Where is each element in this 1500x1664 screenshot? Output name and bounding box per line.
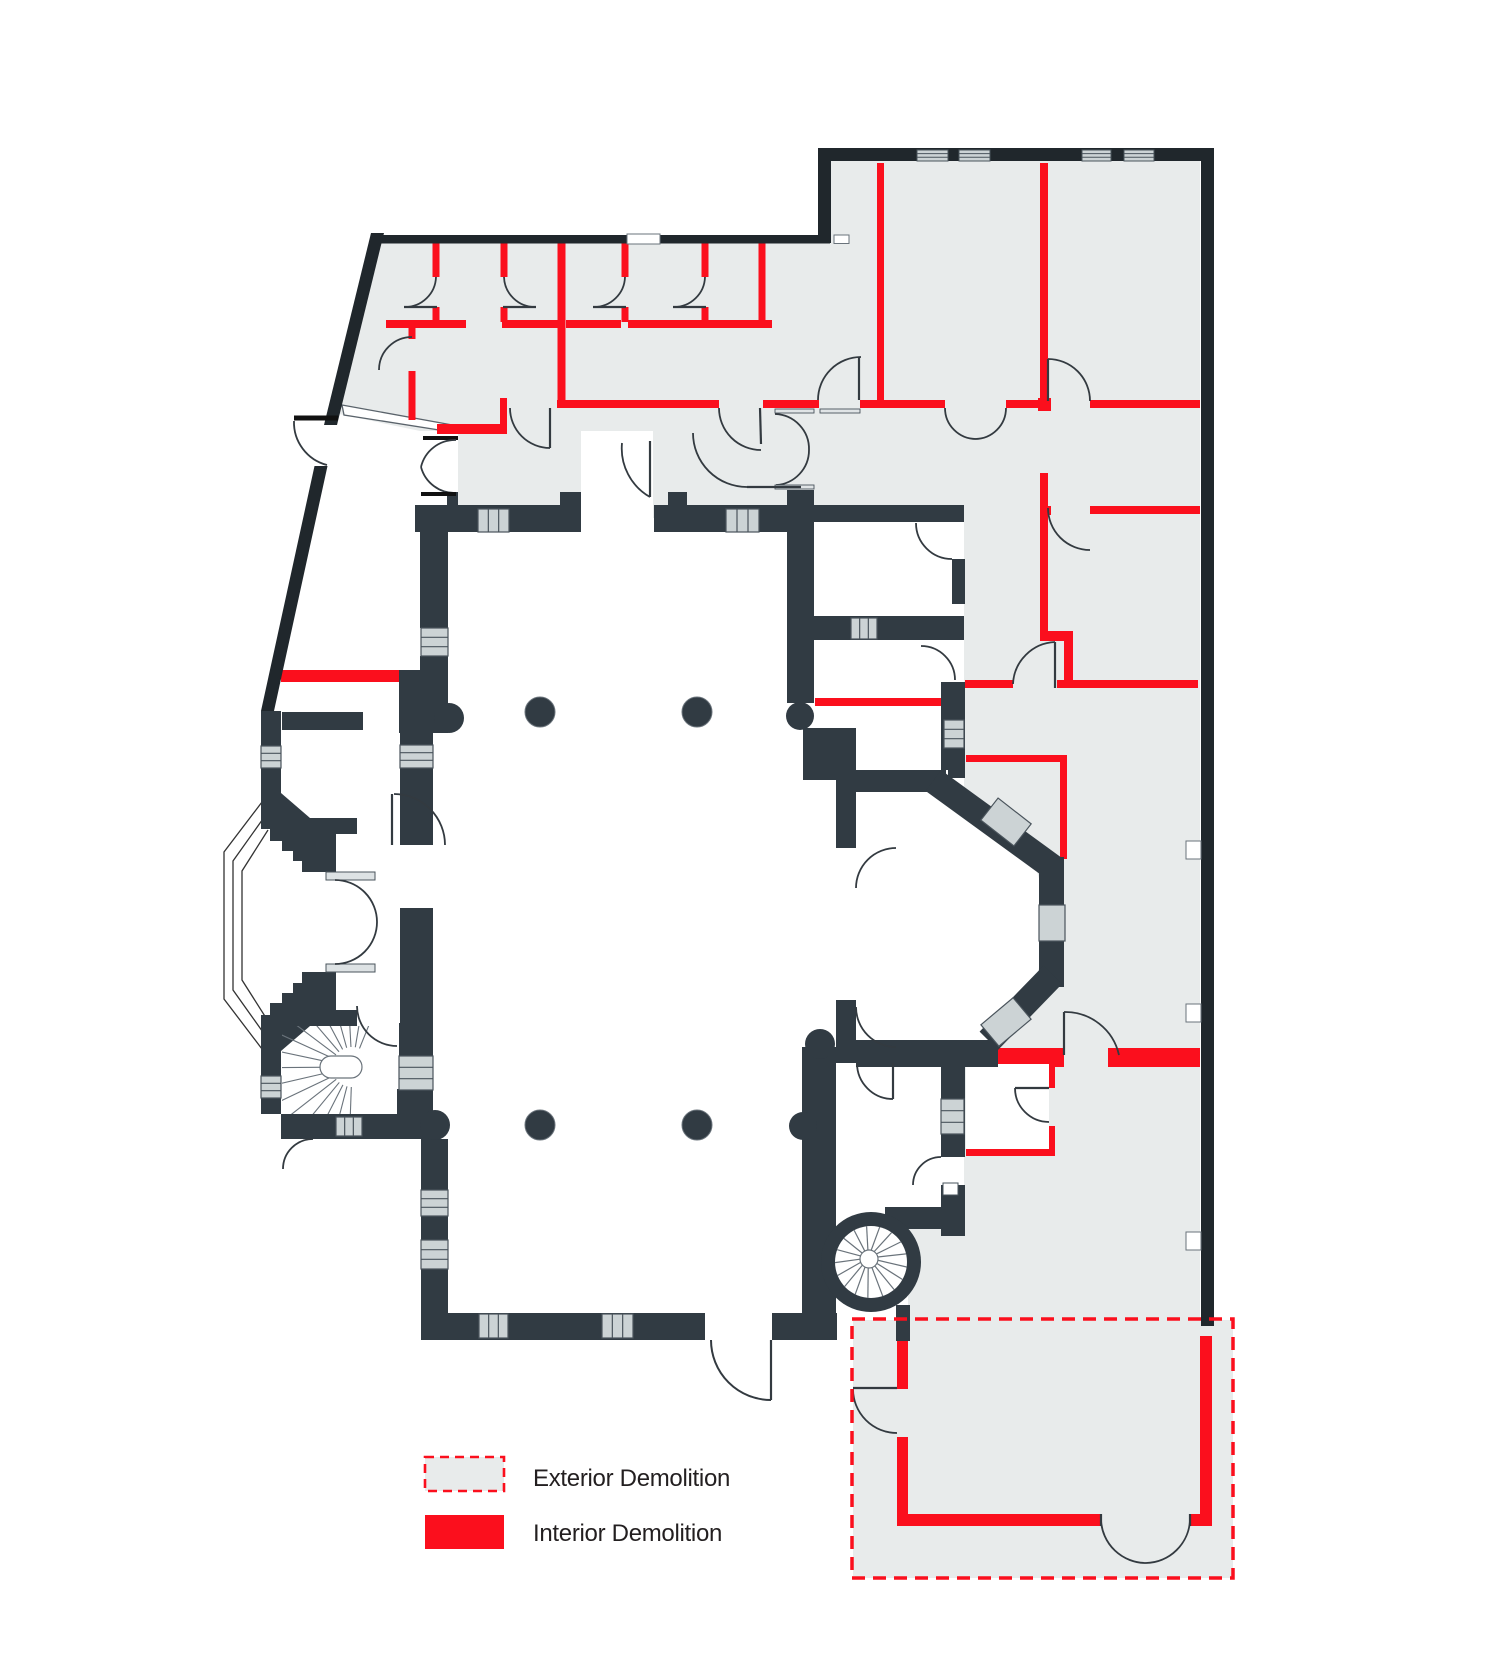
svg-text:Exterior Demolition: Exterior Demolition (533, 1465, 730, 1492)
svg-text:Interior Demolition: Interior Demolition (533, 1520, 722, 1547)
